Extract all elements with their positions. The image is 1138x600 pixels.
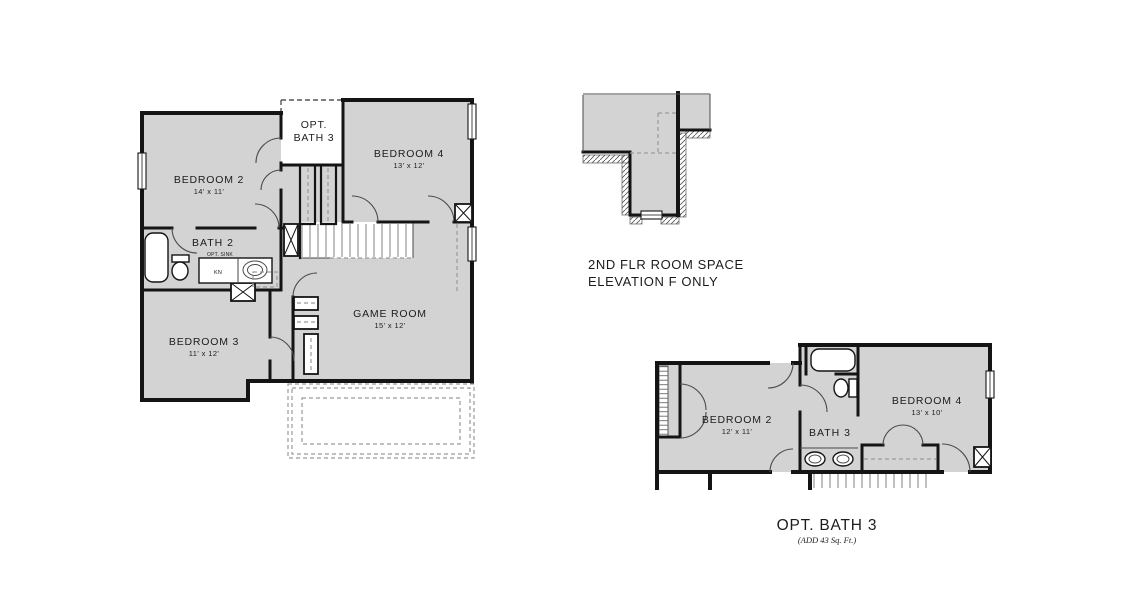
toilet-tank-icon: [849, 379, 857, 397]
game-room-label: GAME ROOM: [353, 308, 427, 320]
bedroom3-dims: 11' x 12': [189, 349, 220, 358]
detail-caption-line2: ELEVATION F ONLY: [588, 274, 718, 289]
toilet-tank-icon: [172, 255, 189, 262]
bedroom4-dims: 13' x 12': [393, 161, 424, 170]
opt-sink-label: OPT. SINK: [207, 252, 233, 258]
opt-bath3-dashed-outline: [281, 100, 343, 113]
floor-plan-drawing: BEDROOM 2 14' x 11' OPT. BATH 3 BEDROOM …: [0, 0, 1138, 600]
sink-icon-left: [805, 452, 825, 466]
cabinet-label: KN: [214, 270, 222, 276]
toilet-icon: [834, 379, 848, 397]
bedroom2-label: BEDROOM 2: [174, 174, 244, 186]
optplan-bedroom4-label: BEDROOM 4: [892, 395, 962, 407]
optplan-caption: OPT. BATH 3: [777, 517, 878, 534]
detail-caption-line1: 2ND FLR ROOM SPACE: [588, 257, 744, 272]
hall-closet-zone: [281, 165, 343, 224]
opt-bath3-label-line2: BATH 3: [294, 132, 335, 144]
sink-icon-right: [833, 452, 853, 466]
elevation-detail: 2ND FLR ROOM SPACE ELEVATION F ONLY: [583, 93, 744, 289]
optplan-caption-note: (ADD 43 Sq. Ft.): [798, 535, 856, 545]
bedroom4-label: BEDROOM 4: [374, 148, 444, 160]
floor-plan-page: BEDROOM 2 14' x 11' OPT. BATH 3 BEDROOM …: [0, 0, 1138, 600]
optplan-bedroom2-dims: 12' x 11': [722, 427, 753, 436]
staircase: [300, 222, 413, 258]
opt-bath3-plan: BEDROOM 2 12' x 11' BATH 3 BEDROOM 4 13'…: [657, 345, 994, 545]
bedroom3-label: BEDROOM 3: [169, 336, 239, 348]
optplan-bedroom2-label: BEDROOM 2: [702, 414, 772, 426]
patio-dashed-outline: [288, 384, 474, 458]
bath3-label: BATH 3: [809, 427, 851, 439]
game-room-dims: 15' x 12': [374, 321, 405, 330]
bedroom3-room-extension: [142, 381, 248, 400]
optplan-bedroom4-dims: 13' x 10': [911, 408, 942, 417]
bedroom2-dims: 14' x 11': [194, 187, 225, 196]
toilet-icon: [172, 262, 188, 280]
main-floor-plan: BEDROOM 2 14' x 11' OPT. BATH 3 BEDROOM …: [138, 100, 476, 458]
bathtub-icon: [811, 349, 855, 371]
bath2-label: BATH 2: [192, 237, 234, 249]
closet-shelving-rungs: [659, 366, 668, 436]
opt-bath3-label-line1: OPT.: [301, 119, 328, 131]
bedroom2-room: [142, 113, 281, 228]
bathtub-icon: [145, 233, 168, 282]
optplan-stair-treads: [814, 474, 926, 488]
